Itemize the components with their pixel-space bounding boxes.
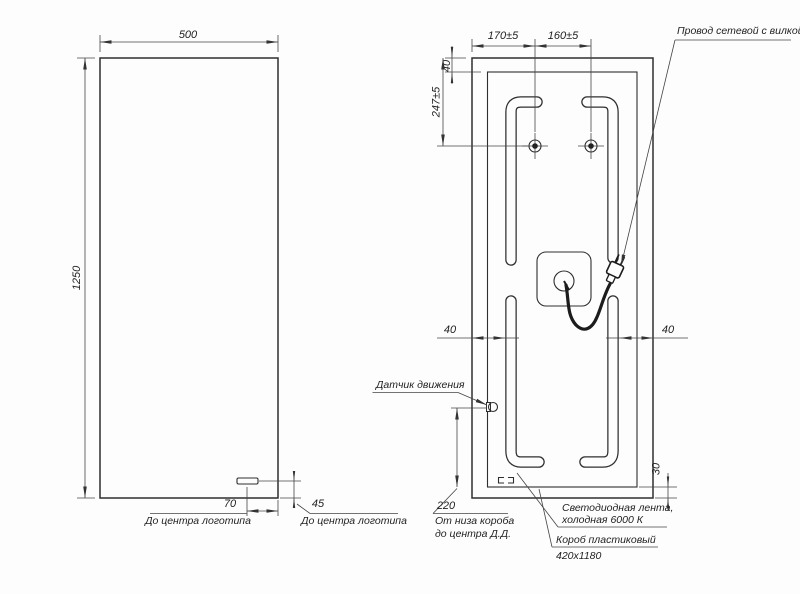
sensor-caption-line2: до центра Д.Д. [435,528,511,540]
motion-sensor-label: Датчик движения [375,379,465,391]
dim-logo-70: 70 До центра логотипа [144,487,278,527]
label-motion-sensor: Датчик движения [373,379,488,405]
dim-hole-spacing-label: 160±5 [548,30,579,42]
sensor-caption-line1: От низа короба [435,515,514,527]
technical-drawing-page: 500 1250 70 До центра логотипа 45 [0,0,800,594]
dim-width-label: 500 [179,29,198,41]
logo-caption-right: До центра логотипа [300,515,407,527]
dim-top-gap: 40 [441,46,481,84]
dim-holes-from-top-label: 247±5 [431,86,443,118]
power-cord [566,284,610,329]
mirror-drawing-svg: 500 1250 70 До центра логотипа 45 [0,0,800,594]
strip-connectors [499,478,514,484]
dim-sensor-height-label: 220 [436,500,456,512]
power-cord-label: Провод сетевой с вилкой [677,25,800,37]
junction-box [537,252,591,306]
mirror-back-outline [472,58,653,498]
label-led-strip: Светодиодная лента, холодная 6000 К [517,473,673,527]
plastic-box-label-line1: Короб пластиковый [556,534,656,546]
logo-caption-left: До центра логотипа [144,515,251,527]
plastic-box-label-line2: 420х1180 [556,550,602,562]
logo-mark [237,478,258,484]
mounting-hole-right [578,133,604,159]
front-view: 500 1250 70 До центра логотипа 45 [71,29,407,527]
label-power-cord: Провод сетевой с вилкой [621,25,800,266]
dim-holes-top: 170±5 160±5 [472,30,591,132]
dim-height-1250: 1250 [71,58,95,498]
led-strip-label-line2: холодная 6000 К [561,514,644,526]
dim-bottom-gap-label: 30 [651,462,663,475]
dim-height-label: 1250 [71,265,83,290]
led-strip [511,102,613,462]
dim-logo-x-label: 70 [224,498,237,510]
dim-sensor-height: 220 От низа короба до центра Д.Д. [433,408,514,540]
dim-logo-y-label: 45 [312,498,325,510]
led-strip-label-line1: Светодиодная лента, [562,502,673,514]
dim-logo-45: 45 До центра логотипа [259,471,407,527]
dim-width-500: 500 [100,29,278,52]
dim-strip-gap-right-label: 40 [662,324,675,336]
mirror-front-outline [100,58,278,498]
motion-sensor [487,403,498,412]
dim-strip-gap-left-label: 40 [444,324,457,336]
back-view: 170±5 160±5 40 247±5 40 [373,25,800,562]
dim-hole-left-label: 170±5 [488,30,519,42]
